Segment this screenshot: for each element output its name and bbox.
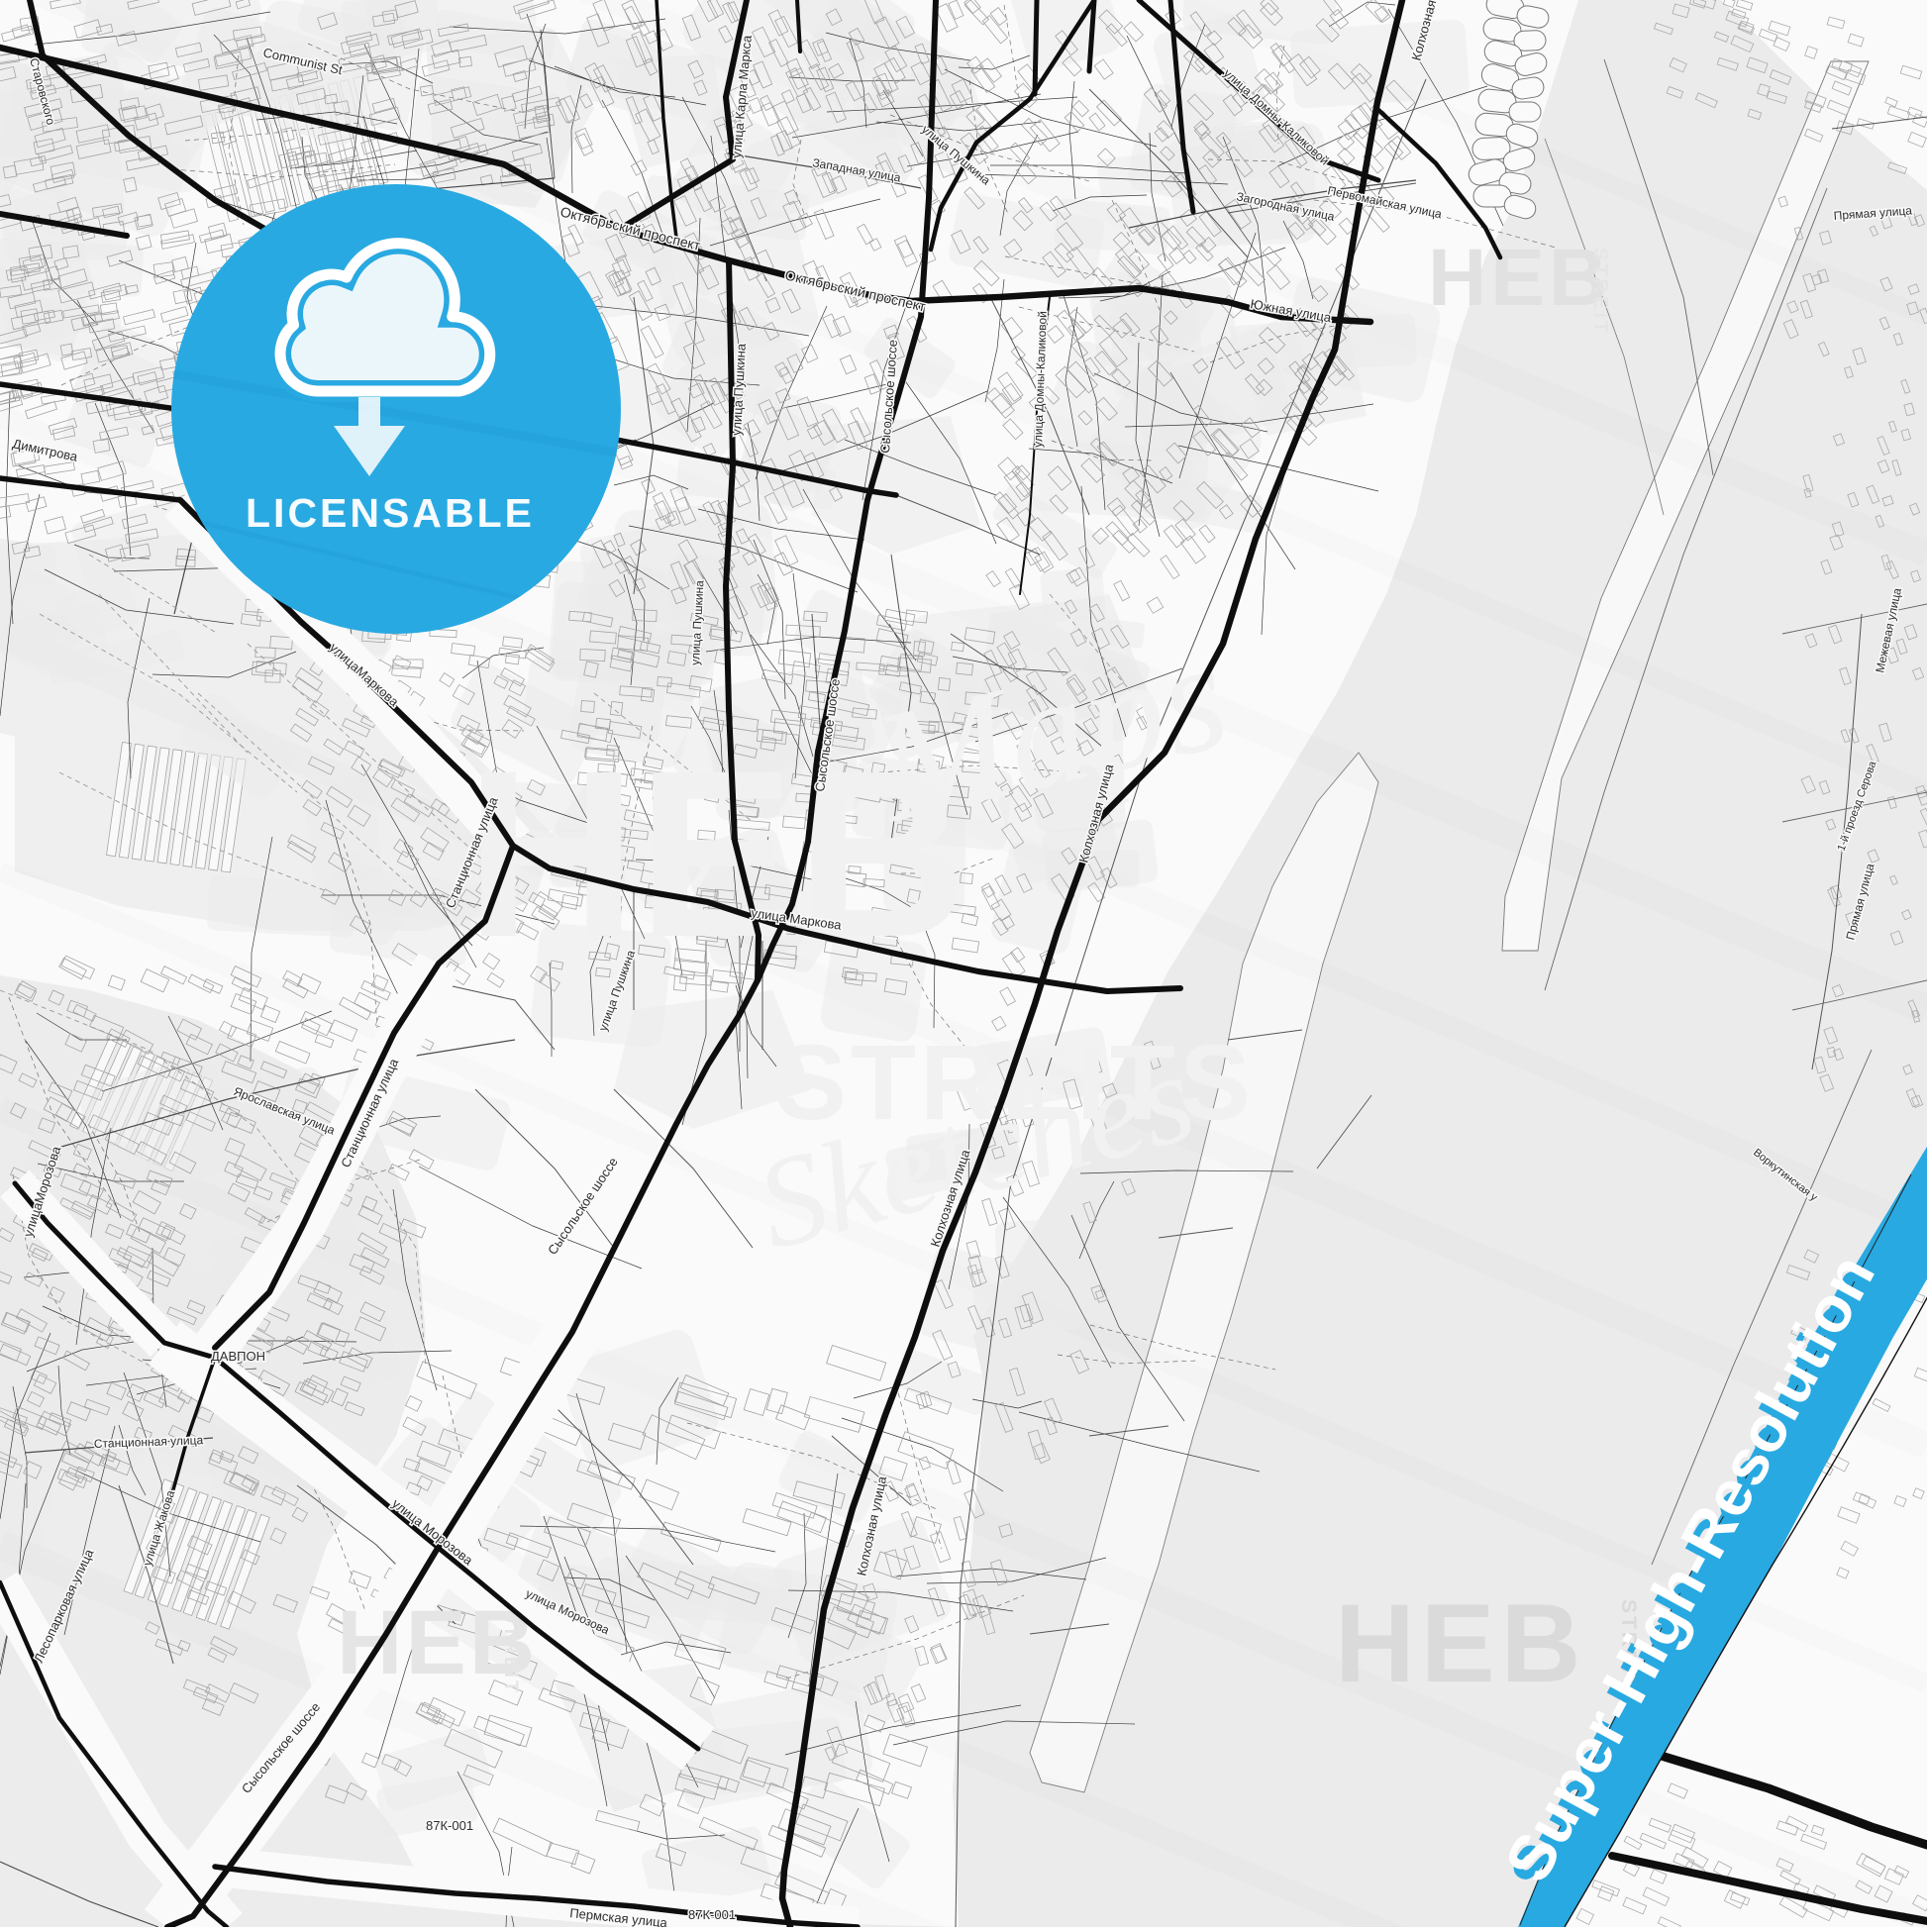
svg-text:STREIT: STREIT <box>1589 248 1611 336</box>
svg-text:ДАВПОН: ДАВПОН <box>211 1349 265 1364</box>
svg-text:HEB: HEB <box>1335 1581 1586 1705</box>
svg-text:STREIT: STREIT <box>500 1610 521 1695</box>
svg-text:87К-001: 87К-001 <box>688 1907 736 1922</box>
svg-text:87К-001: 87К-001 <box>426 1818 473 1833</box>
svg-text:HEB: HEB <box>1428 233 1611 323</box>
svg-text:LICENSABLE: LICENSABLE <box>246 490 535 536</box>
svg-text:HEB: HEB <box>465 721 967 986</box>
